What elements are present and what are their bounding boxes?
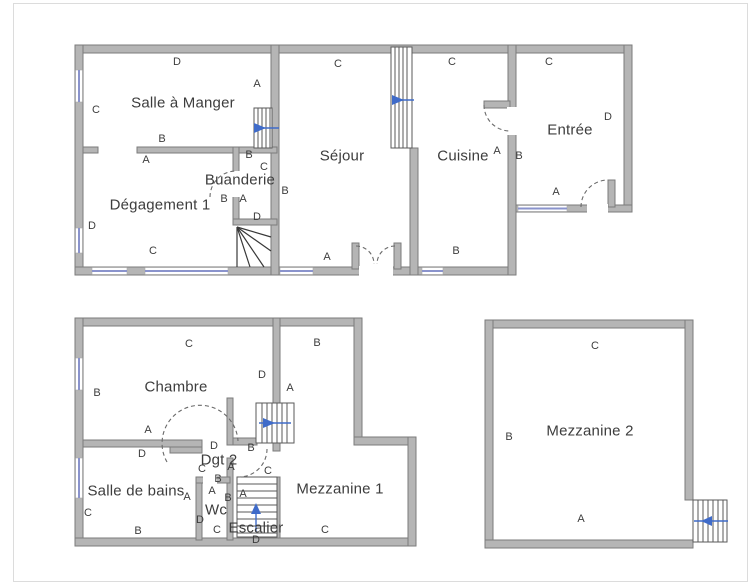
orientation-label: B — [505, 431, 512, 443]
orientation-label: C — [260, 161, 268, 173]
orientation-label: C — [149, 245, 157, 257]
orientation-label: B — [220, 193, 227, 205]
orientation-label: B — [452, 245, 459, 257]
winder-stair — [237, 227, 271, 267]
first-floor-plan — [75, 318, 416, 546]
room-label-salle-de-bains: Salle de bains — [87, 483, 184, 500]
orientation-label: A — [208, 485, 215, 497]
orientation-label: D — [173, 56, 181, 68]
orientation-label: A — [239, 488, 246, 500]
orientation-label: B — [245, 149, 252, 161]
orientation-label: D — [138, 448, 146, 460]
room-label-buanderie: Buanderie — [205, 172, 275, 189]
orientation-label: C — [591, 340, 599, 352]
orientation-label: C — [545, 56, 553, 68]
orientation-label: C — [198, 463, 206, 475]
orientation-label: C — [185, 338, 193, 350]
orientation-label: B — [158, 133, 165, 145]
orientation-label: B — [515, 150, 522, 162]
room-label-salle-a-manger: Salle à Manger — [131, 95, 235, 112]
orientation-label: A — [239, 193, 246, 205]
floor-plan-drawing — [0, 0, 750, 588]
orientation-label: C — [264, 465, 272, 477]
orientation-label: D — [258, 369, 266, 381]
orientation-label: C — [334, 58, 342, 70]
stair-shaft — [256, 403, 294, 443]
orientation-label: A — [493, 145, 500, 157]
orientation-label: C — [448, 56, 456, 68]
room-label-mezzanine-2: Mezzanine 2 — [546, 423, 633, 440]
orientation-label: D — [252, 534, 260, 546]
orientation-label: D — [604, 111, 612, 123]
orientation-label: C — [213, 524, 221, 536]
orientation-label: A — [286, 382, 293, 394]
room-label-degagement-1: Dégagement 1 — [110, 197, 211, 214]
room-label-sejour: Séjour — [320, 148, 365, 165]
orientation-label: A — [323, 251, 330, 263]
orientation-label: A — [253, 78, 260, 90]
orientation-label: A — [227, 461, 234, 473]
orientation-label: C — [92, 104, 100, 116]
orientation-label: D — [253, 211, 261, 223]
orientation-label: D — [196, 514, 204, 526]
orientation-label: A — [552, 186, 559, 198]
room-label-mezzanine-1: Mezzanine 1 — [296, 481, 383, 498]
orientation-label: B — [247, 442, 254, 454]
orientation-label: B — [281, 185, 288, 197]
room-label-wc: Wc — [205, 502, 227, 519]
external-stair — [693, 500, 728, 542]
orientation-label: C — [84, 507, 92, 519]
orientation-label: A — [577, 513, 584, 525]
stair-shaft — [391, 47, 414, 148]
orientation-label: A — [183, 491, 190, 503]
floor-plan-document: Salle à Manger Séjour Cuisine Entrée Bua… — [0, 0, 750, 588]
orientation-label: D — [88, 220, 96, 232]
orientation-label: B — [93, 387, 100, 399]
room-label-cuisine: Cuisine — [437, 148, 488, 165]
orientation-label: B — [224, 492, 231, 504]
orientation-label: B — [134, 525, 141, 537]
orientation-label: B — [214, 473, 221, 485]
room-label-entree: Entrée — [547, 122, 592, 139]
room-label-chambre: Chambre — [144, 379, 207, 396]
orientation-label: A — [144, 424, 151, 436]
orientation-label: C — [321, 524, 329, 536]
orientation-label: A — [142, 154, 149, 166]
orientation-label: B — [313, 337, 320, 349]
orientation-label: D — [210, 440, 218, 452]
